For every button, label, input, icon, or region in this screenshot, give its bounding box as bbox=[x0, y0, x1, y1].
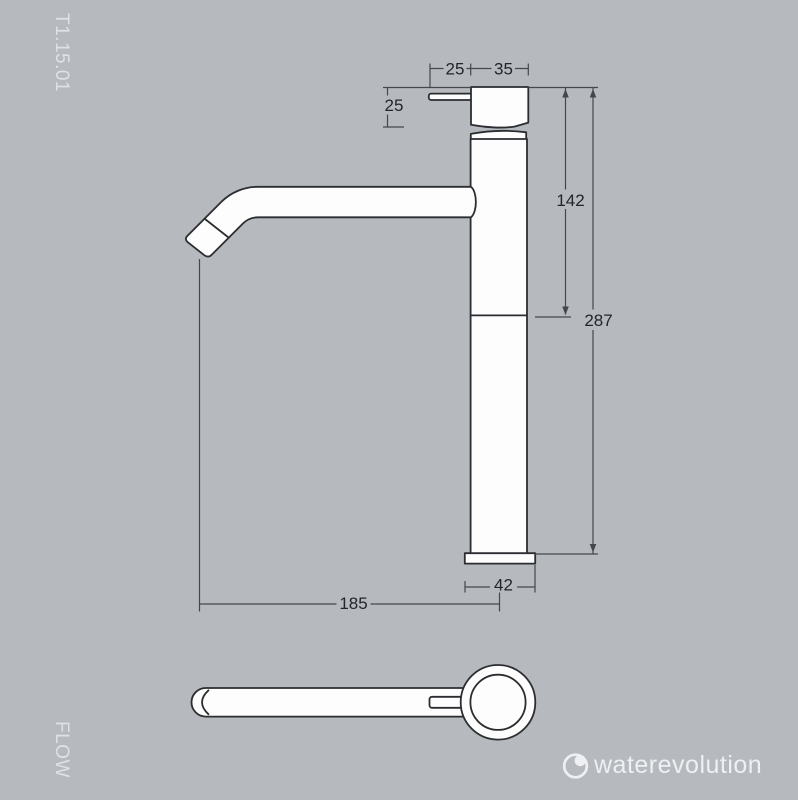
faucet-head bbox=[471, 87, 528, 128]
dim-base-width: 42 bbox=[494, 576, 513, 595]
dim-lever-length: 25 bbox=[446, 60, 465, 79]
faucet-collar bbox=[471, 131, 526, 139]
top-view-base-inner bbox=[470, 675, 525, 730]
spec-sheet: T1.15.01 FLOW bbox=[0, 0, 798, 800]
dimension-lines bbox=[200, 64, 599, 612]
faucet-lever bbox=[429, 94, 473, 100]
brand-logo: waterevolution bbox=[561, 748, 762, 782]
faucet-column bbox=[471, 139, 527, 553]
dim-head-width: 35 bbox=[494, 60, 513, 79]
dim-spout-reach: 185 bbox=[339, 594, 367, 613]
technical-drawing: 25 35 25 142 287 42 185 bbox=[0, 0, 798, 800]
waterevolution-icon bbox=[561, 748, 591, 782]
top-view bbox=[192, 665, 536, 740]
faucet-spout bbox=[205, 187, 476, 238]
dim-total-height: 287 bbox=[584, 311, 612, 330]
brand-name: waterevolution bbox=[594, 748, 762, 782]
dim-upper-body-height: 142 bbox=[556, 191, 584, 210]
dim-head-height: 25 bbox=[385, 96, 404, 115]
side-view bbox=[186, 87, 535, 564]
faucet-base-plate bbox=[465, 553, 535, 563]
